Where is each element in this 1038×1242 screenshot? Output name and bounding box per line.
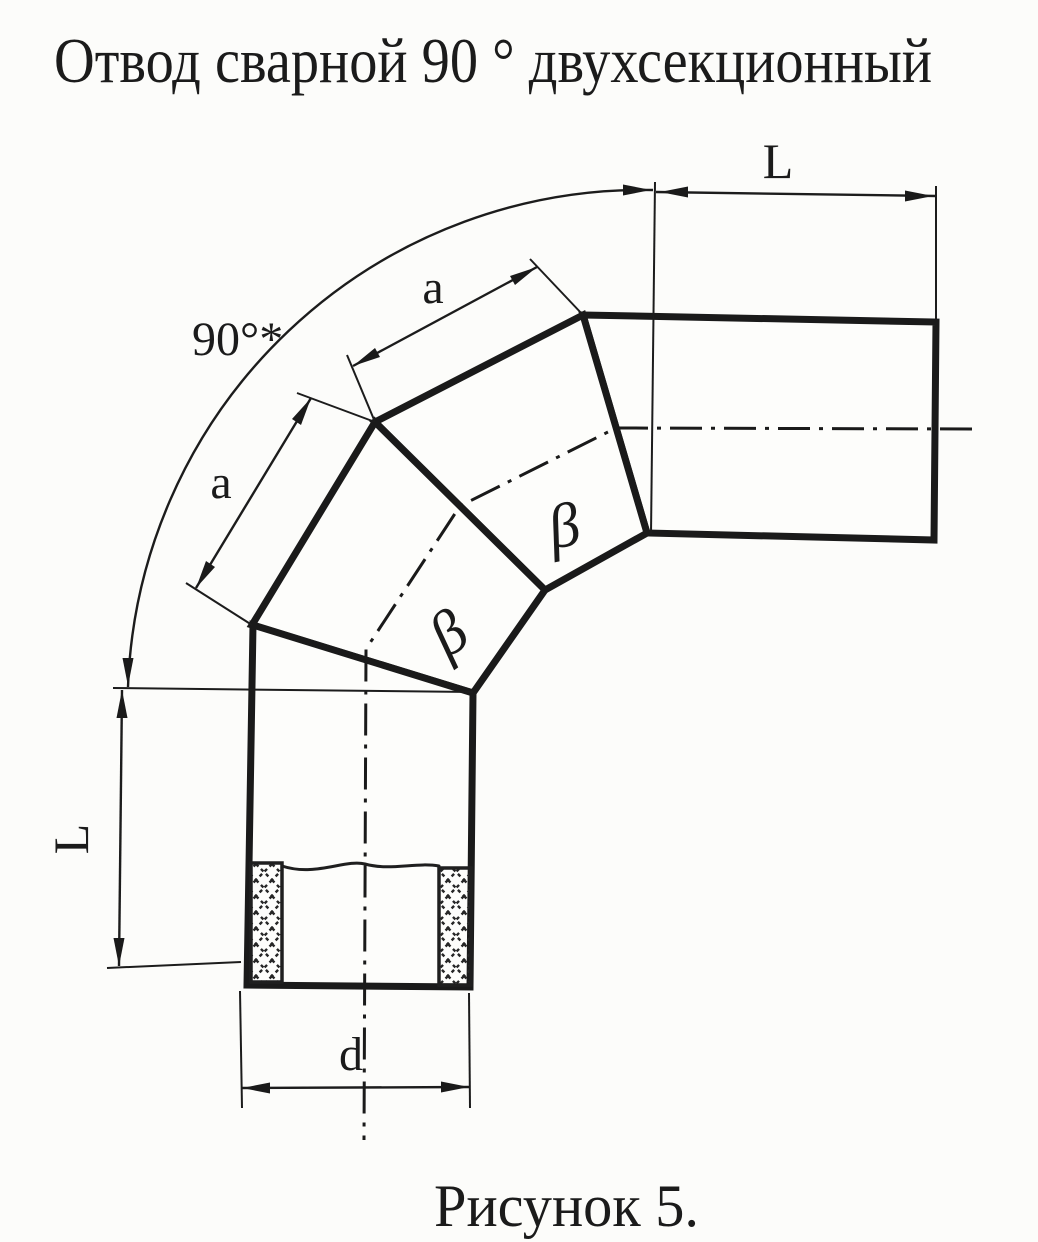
angle-label: 90°* [192,313,283,366]
figure-caption: Рисунок 5. [434,1173,699,1239]
dim-label-L-left: L [43,824,99,855]
dim-label-d: d [339,1028,363,1081]
socket-hatch-left [251,863,282,982]
dim-label-a-upper: a [422,261,443,314]
drawing-page: Отвод сварной 90 ° двухсекционный [0,0,1038,1242]
page-title: Отвод сварной 90 ° двухсекционный [54,25,932,96]
socket-hatch-right [439,868,471,985]
elbow-technical-drawing: Отвод сварной 90 ° двухсекционный [0,0,1038,1242]
ext-line-d-right [469,993,470,1108]
dim-line-d [242,1087,469,1088]
dim-label-a-lower: a [210,456,231,509]
dim-label-L-top: L [763,133,794,189]
